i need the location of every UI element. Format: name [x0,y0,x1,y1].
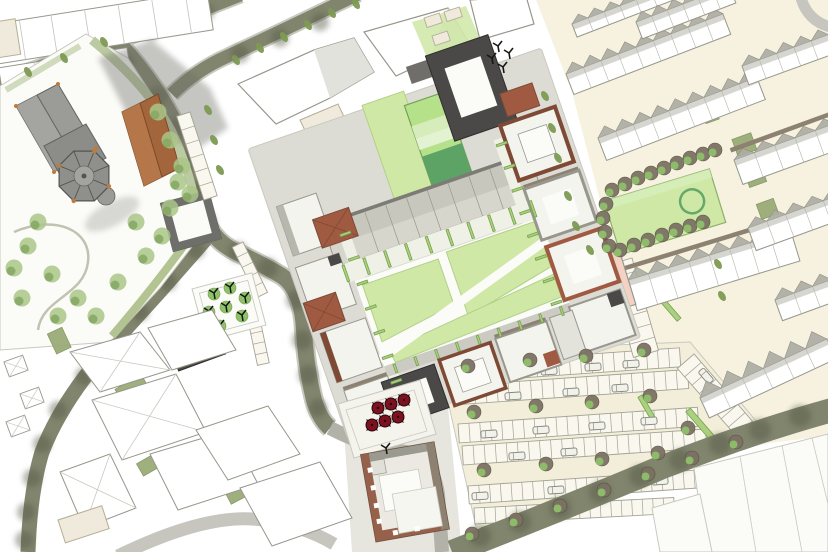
car [612,384,628,392]
canopy-tree [595,452,609,466]
canopy-tree [597,483,611,497]
canopy-tree [509,513,523,527]
canopy-tree [683,151,697,165]
soft-tree [50,308,67,325]
soft-tree [182,186,199,203]
canopy-tree [627,238,641,252]
canopy-tree [657,161,671,175]
canopy-tree [696,215,710,229]
canopy-tree [670,156,684,170]
canopy-tree [598,225,612,239]
cafe-umbrella [372,402,384,414]
car [548,486,564,494]
canopy-tree [585,395,599,409]
canopy-tree [643,389,657,403]
canopy-tree [685,451,699,465]
masterplan-stage [0,0,828,552]
tree-shadow [49,401,67,419]
car [505,392,521,400]
canopy-tree [605,183,619,197]
canopy-tree [644,166,658,180]
canopy-tree [655,228,669,242]
soft-tree [138,248,155,265]
canopy-tree [461,359,475,373]
canopy-tree [467,405,481,419]
canopy-tree [669,223,683,237]
car [481,430,497,438]
canopy-tree [683,219,697,233]
car [585,363,601,371]
canopy-tree [539,457,553,471]
car [561,448,577,456]
soft-tree [6,260,23,277]
soft-tree [88,308,105,325]
canopy-tree [681,421,695,435]
canopy-tree [651,446,665,460]
soft-tree [154,228,171,245]
soft-tree [162,200,179,217]
soft-tree [174,158,191,175]
tree-shadow [17,503,35,521]
cafe-umbrella [392,411,404,423]
cafe-umbrella [385,398,397,410]
canopy-tree [553,499,567,513]
cafe-umbrella [398,394,410,406]
tree-shadow [789,405,811,427]
soft-tree [70,290,87,307]
canopy-tree [631,171,645,185]
canopy-tree [579,349,593,363]
planted-tree [220,301,232,313]
tree-shadow [749,419,771,441]
soft-tree [30,214,47,231]
car [589,422,605,430]
cafe-umbrella [366,419,378,431]
tree-shadow [258,258,278,278]
canopy-tree [637,343,651,357]
south-courtyard-building [361,442,449,542]
tree-shadow [33,435,51,453]
tree-shadow [709,433,731,455]
car [533,426,549,434]
car [509,452,525,460]
tree-shadow [311,13,329,31]
canopy-tree [477,463,491,477]
canopy-tree [602,239,616,253]
soft-tree [150,104,167,121]
soft-tree [162,132,179,149]
canopy-tree [465,527,479,541]
planted-tree [239,292,251,304]
canopy-tree [596,211,610,225]
car [623,360,639,368]
tree-shadow [309,399,327,417]
tree-shadow [23,469,41,487]
soft-tree [14,290,31,307]
car [641,417,657,425]
canopy-tree [641,467,655,481]
soft-tree [128,214,145,231]
canopy-tree [641,233,655,247]
tree-shadow [298,365,318,385]
soft-tree [170,174,187,191]
planted-tree [224,282,236,294]
canopy-tree [729,435,743,449]
site-masterplan [0,0,828,552]
planted-tree [208,288,220,300]
tree-shadow [15,531,33,549]
canopy-tree [529,399,543,413]
cafe-umbrella [379,415,391,427]
canopy-tree [599,197,613,211]
tree-shadow [292,330,312,350]
canopy-tree [708,143,722,157]
canopy-tree [523,353,537,367]
soft-tree [110,274,127,291]
planted-tree [236,310,248,322]
canopy-tree [618,177,632,191]
car [472,492,488,500]
car [563,388,579,396]
soft-tree [44,266,61,283]
soft-tree [20,238,37,255]
